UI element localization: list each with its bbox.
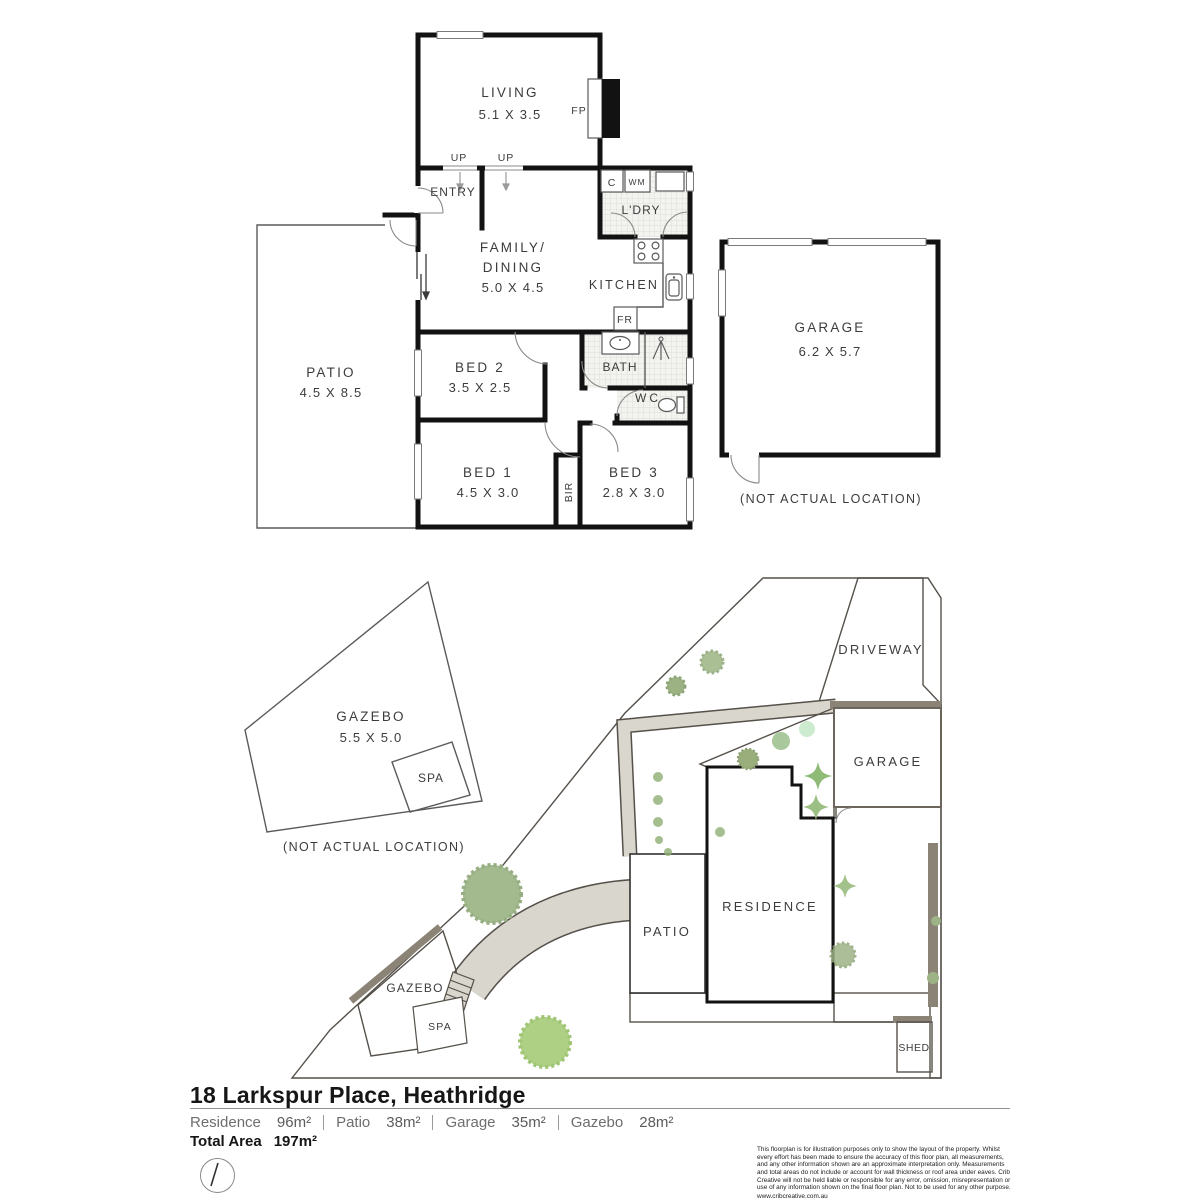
total-area-label: Total Area xyxy=(190,1133,262,1150)
room-label-bath: BATH xyxy=(602,360,637,374)
room-label-bed1: BED 1 xyxy=(463,465,513,480)
room-dims-bed2: 3.5 X 2.5 xyxy=(449,380,512,395)
room-dims-garage: 6.2 X 5.7 xyxy=(799,344,862,359)
room-label-kitchen: KITCHEN xyxy=(589,278,659,292)
site-label-shed: SHED xyxy=(898,1042,929,1054)
marker-up1: UP xyxy=(451,152,468,164)
site-label-spa: SPA xyxy=(428,1021,452,1033)
room-label-entry: ENTRY xyxy=(430,185,475,199)
marker-wm: WM xyxy=(628,177,645,187)
site-label-garage: GARAGE xyxy=(854,754,923,769)
area-value-garage: 35m² xyxy=(512,1114,546,1131)
room-dims-bed1: 4.5 X 3.0 xyxy=(457,485,520,500)
area-value-residence: 96m² xyxy=(277,1114,311,1131)
area-label-residence: Residence xyxy=(190,1114,261,1131)
room-label-wc: WC xyxy=(635,391,661,405)
floorplan-page: DRIVEWAY GARAGE RESIDENCE PATIO GAZEBO S… xyxy=(0,0,1200,1200)
windows xyxy=(414,32,694,522)
area-label-garage: Garage xyxy=(445,1114,495,1131)
toilet-icon xyxy=(659,397,685,413)
stove-icon xyxy=(634,239,663,263)
site-label-gazebo: GAZEBO xyxy=(386,981,443,995)
disclaimer: This floorplan is for illustration purpo… xyxy=(757,1146,1014,1200)
room-dims-living: 5.1 X 3.5 xyxy=(479,107,542,122)
area-label-gazebo: Gazebo xyxy=(571,1114,624,1131)
site-label-driveway: DRIVEWAY xyxy=(838,642,924,657)
area-divider xyxy=(558,1115,559,1130)
room-dims-patio: 4.5 X 8.5 xyxy=(300,385,363,400)
room-label-spa: SPA xyxy=(418,771,444,785)
area-summary: Residence 96m² Patio 38m² Garage 35m² Ga… xyxy=(190,1114,673,1131)
room-dims-family: 5.0 X 4.5 xyxy=(482,280,545,295)
vanity-icon xyxy=(602,332,639,354)
room-label-family1: FAMILY/ xyxy=(480,240,546,255)
divider-rule xyxy=(190,1108,1010,1109)
site-garage-door-arc xyxy=(836,808,851,823)
room-label-patio: PATIO xyxy=(306,365,356,380)
room-dims-bed3: 2.8 X 3.0 xyxy=(603,485,666,500)
room-dims-gazebo: 5.5 X 5.0 xyxy=(340,730,403,745)
marker-fp: FP xyxy=(571,105,586,117)
plan-canvas: DRIVEWAY GARAGE RESIDENCE PATIO GAZEBO S… xyxy=(0,0,1200,1200)
area-label-patio: Patio xyxy=(336,1114,370,1131)
room-label-garage: GARAGE xyxy=(795,320,866,335)
room-label-bed2: BED 2 xyxy=(455,360,505,375)
marker-fr: FR xyxy=(617,314,633,326)
area-value-gazebo: 28m² xyxy=(639,1114,673,1131)
total-area-value: 197m² xyxy=(274,1133,317,1150)
area-divider xyxy=(432,1115,433,1130)
marker-up2: UP xyxy=(498,152,515,164)
area-value-patio: 38m² xyxy=(386,1114,420,1131)
total-area: Total Area197m² xyxy=(190,1133,317,1150)
disclaimer-text: This floorplan is for illustration purpo… xyxy=(757,1146,1014,1192)
trough-icon xyxy=(656,172,684,191)
page-title: 18 Larkspur Place, Heathridge xyxy=(190,1082,526,1109)
site-label-patio: PATIO xyxy=(643,924,691,939)
gazebo-plan: GAZEBO 5.5 X 5.0 SPA (NOT ACTUAL LOCATIO… xyxy=(245,582,482,854)
room-label-living: LIVING xyxy=(481,85,538,100)
room-label-laundry: L'DRY xyxy=(621,203,660,217)
room-label-bir: BIR xyxy=(563,482,575,503)
site-plan: DRIVEWAY GARAGE RESIDENCE PATIO GAZEBO S… xyxy=(292,578,941,1078)
room-label-family2: DINING xyxy=(483,260,543,275)
garage-location-note: (NOT ACTUAL LOCATION) xyxy=(740,492,922,506)
website-text: www.cribcreative.com.au xyxy=(757,1193,1014,1200)
floor-plan: LIVING 5.1 X 3.5 FP UP UP ENTRY C WM L'D… xyxy=(257,32,694,529)
garage-plan: GARAGE 6.2 X 5.7 (NOT ACTUAL LOCATION) xyxy=(719,239,939,507)
site-label-residence: RESIDENCE xyxy=(722,899,818,914)
area-divider xyxy=(323,1115,324,1130)
room-label-gazebo: GAZEBO xyxy=(336,709,405,724)
gazebo-location-note: (NOT ACTUAL LOCATION) xyxy=(283,840,465,854)
compass-icon xyxy=(200,1158,235,1193)
room-label-bed3: BED 3 xyxy=(609,465,659,480)
sink-icon xyxy=(666,274,682,300)
fireplace-icon xyxy=(588,79,620,138)
marker-c: C xyxy=(608,177,617,189)
